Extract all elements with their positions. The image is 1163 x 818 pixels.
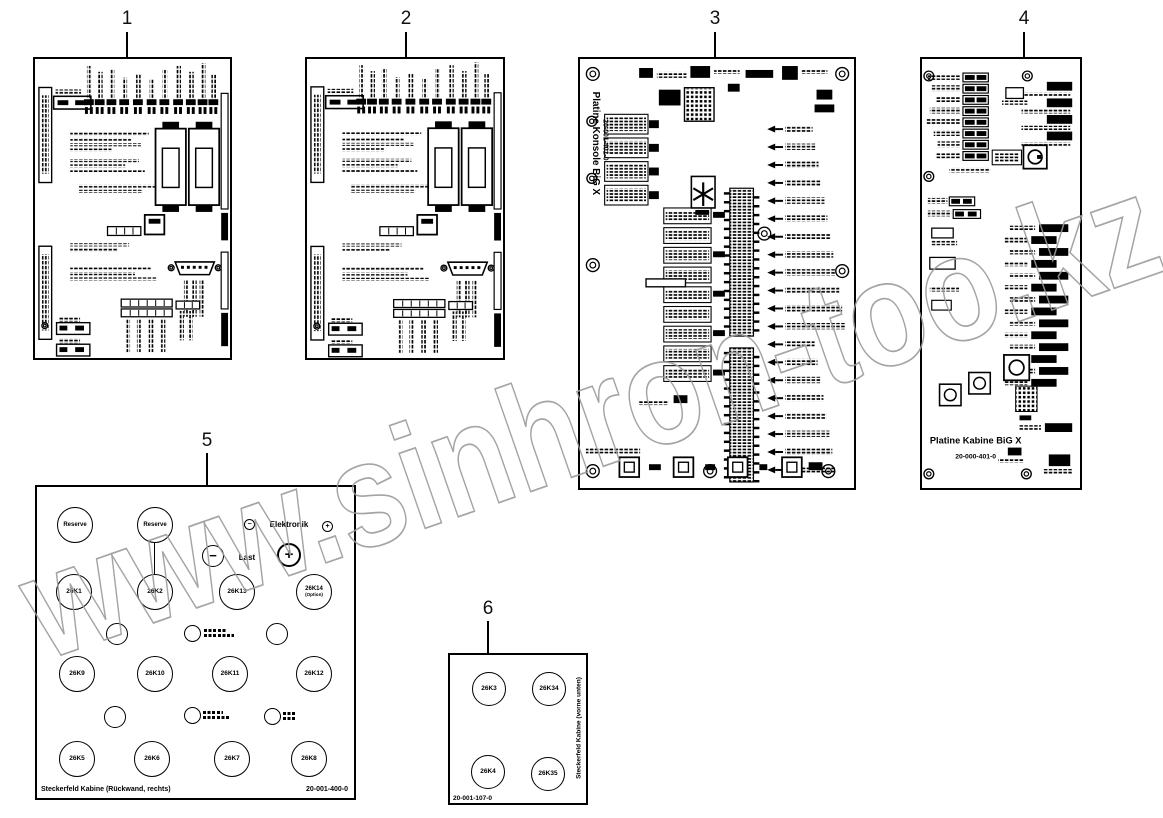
relay-circle-26k3: 26K3 <box>472 672 506 706</box>
indicator-label-smudge <box>283 717 297 720</box>
relay-circle-26k4: 26K4 <box>471 755 505 789</box>
load-plus-circle: + <box>277 543 301 567</box>
indicator-label-smudge <box>204 629 226 632</box>
callout-6-leader <box>487 621 489 653</box>
relay-circle-26k6: 26K6 <box>134 741 170 777</box>
indicator-circle <box>106 623 128 645</box>
callout-1-leader <box>126 32 128 57</box>
callout-2-leader <box>405 32 407 57</box>
relay-circle-26k2: 26K2 <box>137 574 173 610</box>
board4-part-number: 20-000-401-0 <box>955 453 996 460</box>
relay-circle-26k13: 26K13 <box>219 574 255 610</box>
relay-circle-26k9: 26K9 <box>59 656 95 692</box>
board4-title: Platine Kabine BiG X <box>930 436 1022 446</box>
callout-3-leader <box>714 32 716 57</box>
callout-3: 3 <box>710 8 721 30</box>
board6-side-label: Steckerfeld Kabine (vorne unten) <box>576 677 583 779</box>
board-1-circuit-diagram <box>33 57 232 360</box>
load-minus-circle: − <box>202 545 224 567</box>
relay-circle-26k35: 26K35 <box>531 757 565 791</box>
relay-circle-26k1: 26K1 <box>56 574 92 610</box>
board3-part-number: 20-001-401-0 <box>602 119 609 160</box>
indicator-circle-labeled <box>184 625 201 642</box>
callout-1: 1 <box>122 8 133 30</box>
board5-part-number: 20-001-400-0 <box>306 786 348 793</box>
electronics-plus-icon: + <box>322 521 333 532</box>
board-2-graphics <box>311 62 501 356</box>
board-6-steckerfeld-vorne: 26K3 26K34 26K4 26K35 Steckerfeld Kabine… <box>448 653 588 805</box>
electronics-minus-icon: − <box>244 519 255 530</box>
indicator-circle <box>266 623 288 645</box>
indicator-label-smudge <box>283 712 297 715</box>
board-4-graphics <box>924 71 1072 479</box>
board-3-graphics <box>586 66 849 482</box>
callout-6: 6 <box>483 598 494 620</box>
board6-part-number: 20-001-107-0 <box>453 795 492 802</box>
relay-circle-26k34: 26K34 <box>532 672 566 706</box>
relay-circle-26k14: 26K14(Option) <box>296 574 332 610</box>
indicator-label-smudge <box>203 711 223 714</box>
board-3-platine-konsole: Platine Konsole BiG X 20-001-401-0 <box>578 57 856 490</box>
board-1-graphics <box>39 63 228 356</box>
catalog-page: 1 2 3 4 5 6 Platine Konsole BiG X 20-001… <box>0 0 1163 818</box>
callout-4: 4 <box>1019 8 1030 30</box>
board-2-circuit-diagram <box>305 57 505 360</box>
callout-4-leader <box>1023 32 1025 57</box>
electronics-label: Elektronik <box>259 520 319 529</box>
relay-circle-26k10: 26K10 <box>137 656 173 692</box>
relay-circle-reserve-2: Reserve <box>137 507 173 543</box>
relay-circle-reserve-1: Reserve <box>57 507 93 543</box>
indicator-label-smudge <box>204 634 234 637</box>
relay-circle-26k5: 26K5 <box>59 741 95 777</box>
callout-5-leader <box>206 453 208 485</box>
indicator-circle <box>104 706 126 728</box>
relay-circle-26k11: 26K11 <box>212 656 248 692</box>
callout-2: 2 <box>401 8 412 30</box>
indicator-label-smudge <box>203 716 229 719</box>
indicator-circle-labeled <box>264 708 281 725</box>
callout-5: 5 <box>202 430 213 452</box>
relay-circle-26k7: 26K7 <box>214 741 250 777</box>
indicator-circle-labeled <box>184 707 201 724</box>
board-5-steckerfeld-rueckwand: Reserve Reserve − Elektronik + − Last + … <box>35 485 356 800</box>
board5-footer-label: Steckerfeld Kabine (Rückwand, rechts) <box>41 786 171 793</box>
relay-circle-26k12: 26K12 <box>296 656 332 692</box>
relay-circle-26k8: 26K8 <box>291 741 327 777</box>
load-label: Last <box>233 553 261 562</box>
board-4-platine-kabine: Platine Kabine BiG X 20-000-401-0 <box>920 57 1082 490</box>
board3-title: Platine Konsole BiG X <box>590 92 601 196</box>
connector-line <box>154 543 155 574</box>
